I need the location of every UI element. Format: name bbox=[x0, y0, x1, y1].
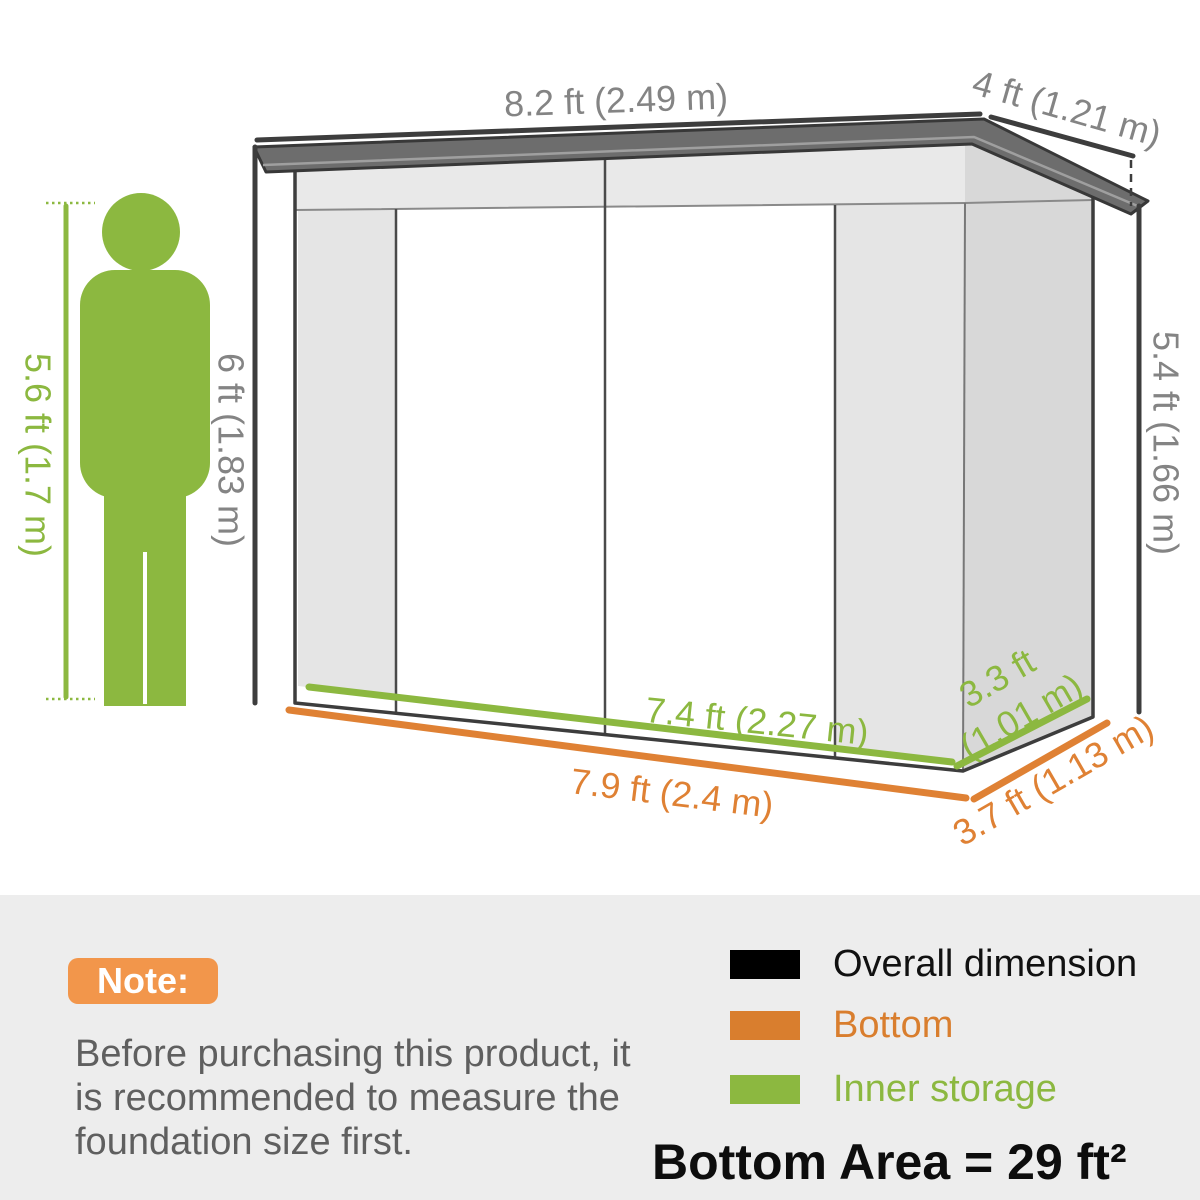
person-head bbox=[102, 193, 180, 271]
inner-storage-swatch bbox=[730, 1075, 800, 1104]
inner-storage-label: Inner storage bbox=[833, 1068, 1057, 1111]
front-height-label: 6 ft (1.83 m) bbox=[211, 353, 252, 547]
person-height-label: 5.6 ft (1.7 m) bbox=[18, 353, 59, 557]
info-panel: Note: Before purchasing this product, it… bbox=[0, 895, 1200, 1200]
shed-right-post bbox=[835, 203, 965, 764]
legend-item-bottom: Bottom bbox=[730, 1004, 953, 1047]
note-text-line-1: Before purchasing this product, it bbox=[75, 1033, 835, 1076]
note-text-line-2: is recommended to measure the bbox=[75, 1077, 835, 1120]
bottom-label: Bottom bbox=[833, 1004, 953, 1047]
person-figure: 5.6 ft (1.7 m) bbox=[18, 193, 211, 706]
overall-dimension-swatch bbox=[730, 950, 800, 979]
shed-dimension-diagram: 5.6 ft (1.7 m) bbox=[0, 0, 1200, 1200]
overall-dimension-label: Overall dimension bbox=[833, 943, 1137, 986]
back-height-label: 5.4 ft (1.66 m) bbox=[1146, 331, 1187, 555]
roof-width-label: 8.2 ft (2.49 m) bbox=[503, 76, 728, 125]
note-badge: Note: bbox=[68, 958, 218, 1004]
bottom-area-text: Bottom Area = 29 ft² (2.7 m²) bbox=[652, 1133, 1200, 1200]
legend-item-overall: Overall dimension bbox=[730, 943, 1137, 986]
legend-item-inner-storage: Inner storage bbox=[730, 1068, 1057, 1111]
shed-left-post bbox=[298, 209, 396, 697]
bottom-swatch bbox=[730, 1011, 800, 1040]
